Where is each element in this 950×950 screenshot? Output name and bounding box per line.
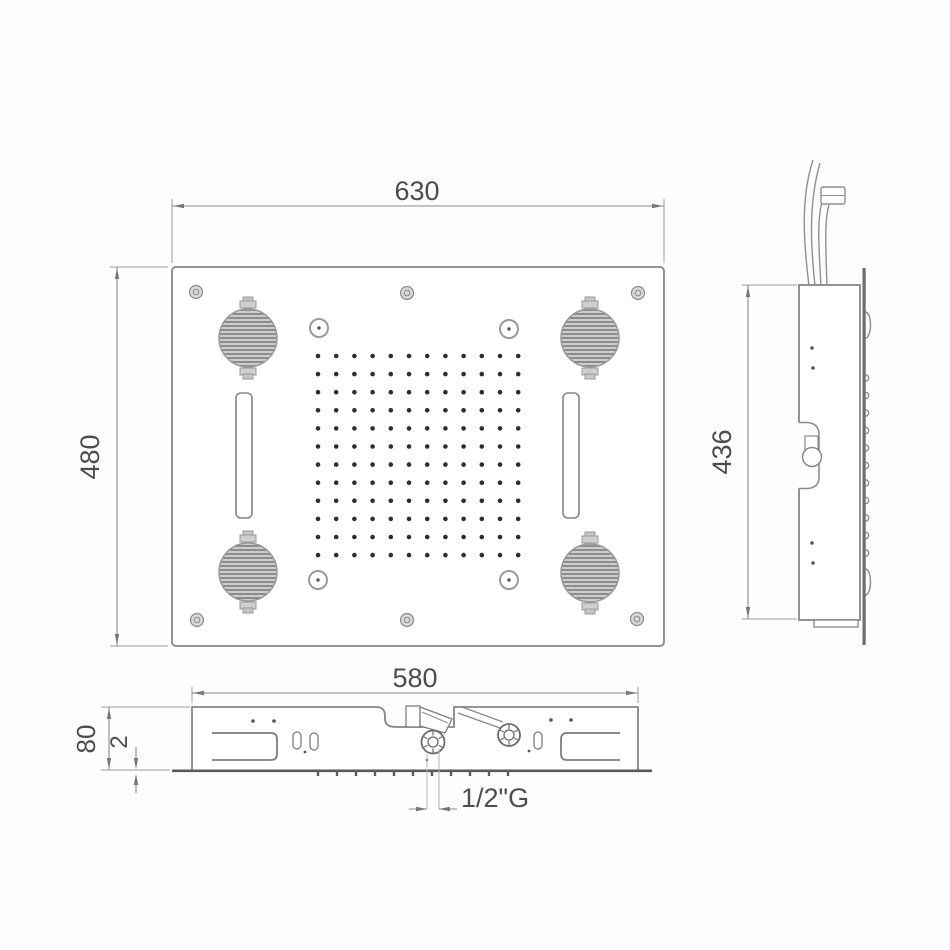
side-view	[797, 160, 871, 645]
nozzle-dot	[498, 390, 503, 395]
nozzle-dot	[334, 480, 339, 485]
nozzle-bump	[866, 392, 869, 398]
nozzle-dot	[516, 354, 521, 359]
nozzle-dot	[352, 372, 357, 377]
dimension-arrow	[107, 708, 111, 719]
nozzle-bump	[866, 375, 869, 381]
nozzle-dot	[480, 354, 485, 359]
nozzle-dot	[425, 372, 430, 377]
nozzle-dot	[334, 517, 339, 522]
nozzle-dot	[334, 372, 339, 377]
nozzle-dot	[407, 535, 412, 540]
nozzle-dot	[389, 517, 394, 522]
nozzle-dot	[370, 480, 375, 485]
nozzle-dot	[498, 372, 503, 377]
led-light	[310, 319, 328, 337]
nozzle-dot	[498, 408, 503, 413]
mounting-screw	[632, 287, 645, 300]
nozzle-tick	[336, 771, 338, 776]
nozzle-dot	[516, 408, 521, 413]
nozzle-dot	[389, 499, 394, 504]
technical-drawing-page: 630 480	[0, 0, 950, 950]
nozzle-dot	[461, 517, 466, 522]
nozzle-dot	[352, 444, 357, 449]
nozzle-dot	[352, 535, 357, 540]
nozzle-dot	[370, 354, 375, 359]
nozzle-dot	[316, 372, 321, 377]
nozzle-tick	[317, 771, 319, 776]
nozzle-dot	[425, 499, 430, 504]
nozzle-dot	[461, 499, 466, 504]
body-width-label: 580	[392, 663, 437, 693]
nozzle-dot	[407, 499, 412, 504]
nozzle-dot	[389, 480, 394, 485]
nozzle-dot	[352, 408, 357, 413]
dimension-arrow	[134, 774, 138, 785]
nozzle-dot	[461, 408, 466, 413]
side-nozzle-bumps	[866, 375, 869, 556]
nozzle-bump	[866, 480, 869, 486]
nozzle-dot	[425, 517, 430, 522]
mounting-screw	[190, 286, 203, 299]
nozzle-dot	[370, 372, 375, 377]
nozzle-dot	[389, 354, 394, 359]
inlet-elbow	[803, 448, 822, 467]
speaker-bump-bottom	[866, 569, 871, 595]
nozzle-dot	[461, 535, 466, 540]
nozzle-dot	[480, 553, 485, 558]
nozzle-dot	[407, 390, 412, 395]
nozzle-dot	[498, 535, 503, 540]
nozzle-dot	[425, 444, 430, 449]
front-width-label: 630	[394, 176, 439, 206]
flange-thickness-label: 2	[106, 735, 133, 748]
mounting-screw	[191, 614, 204, 627]
nozzle-dot	[516, 426, 521, 431]
waterfall-slot-right	[563, 393, 579, 518]
nozzle-dot	[352, 354, 357, 359]
nozzle-dot	[425, 462, 430, 467]
nozzle-bump	[866, 427, 869, 433]
nozzle-dot	[480, 444, 485, 449]
nozzle-dot	[480, 517, 485, 522]
nozzle-dot	[461, 444, 466, 449]
keyhole-slot	[534, 732, 542, 749]
cables	[804, 160, 845, 286]
nozzle-dot	[334, 553, 339, 558]
nozzle-dot	[407, 480, 412, 485]
nozzle-dot	[316, 408, 321, 413]
nozzle-dot	[516, 535, 521, 540]
nozzle-dot	[352, 426, 357, 431]
dimension-arrow	[416, 807, 427, 811]
waterfall-slot-left	[236, 393, 252, 518]
nozzle-bump	[866, 515, 869, 521]
dimension-arrow	[193, 691, 204, 695]
nozzle-dot	[498, 480, 503, 485]
nozzle-dot	[461, 553, 466, 558]
led-light	[309, 571, 327, 589]
nozzle-dot	[516, 372, 521, 377]
nozzle-dot	[389, 408, 394, 413]
nozzle-dot	[443, 390, 448, 395]
front-height-label: 480	[75, 434, 105, 479]
nozzle-dot	[352, 499, 357, 504]
nozzle-dot	[425, 354, 430, 359]
nozzle-dot	[407, 553, 412, 558]
thread-fitting-right	[498, 724, 520, 746]
nozzle-dot	[407, 517, 412, 522]
nozzle-bump	[866, 445, 869, 451]
nozzle-dot	[516, 444, 521, 449]
nozzle-dot	[389, 462, 394, 467]
nozzle-dot	[480, 408, 485, 413]
side-height-label: 436	[707, 429, 737, 474]
nozzle-dot	[370, 462, 375, 467]
dimension-front-width: 630	[172, 176, 664, 263]
nozzle-dot	[443, 408, 448, 413]
nozzle-dot	[498, 354, 503, 359]
mounting-screw	[631, 613, 644, 626]
nozzle-dot	[461, 354, 466, 359]
nozzle-dot	[425, 535, 430, 540]
nozzle-dot	[389, 390, 394, 395]
dimension-flange-thickness: 2	[106, 735, 136, 793]
nozzle-dot	[480, 480, 485, 485]
nozzle-dot	[316, 535, 321, 540]
nozzle-dot	[498, 426, 503, 431]
nozzle-dot	[461, 462, 466, 467]
nozzle-dot	[443, 499, 448, 504]
nozzle-tick	[412, 771, 414, 776]
nozzle-tick	[488, 771, 490, 776]
nozzle-bump	[866, 410, 869, 416]
nozzle-tick	[507, 771, 509, 776]
nozzle-dot	[480, 390, 485, 395]
nozzle-dot	[316, 444, 321, 449]
nozzle-dot	[480, 499, 485, 504]
nozzle-dot	[425, 553, 430, 558]
nozzle-dot	[480, 535, 485, 540]
body-depth-label: 80	[71, 725, 101, 754]
nozzle-dot	[389, 535, 394, 540]
dimension-arrow	[115, 634, 119, 645]
nozzle-dot	[443, 354, 448, 359]
dimension-arrow	[652, 204, 663, 208]
thread-fitting-left	[422, 731, 445, 754]
nozzle-dot	[443, 480, 448, 485]
front-view	[172, 267, 664, 646]
nozzle-dot	[352, 480, 357, 485]
nozzle-dot	[316, 480, 321, 485]
nozzle-dot	[443, 462, 448, 467]
bottom-view	[172, 706, 652, 776]
nozzle-dot	[334, 390, 339, 395]
dimension-arrow	[439, 807, 450, 811]
nozzle-tick	[393, 771, 395, 776]
nozzle-dot	[334, 535, 339, 540]
nozzle-dot	[352, 462, 357, 467]
nozzle-dot	[334, 499, 339, 504]
nozzle-dot	[407, 462, 412, 467]
mounting-screw	[401, 287, 414, 300]
nozzle-dot	[425, 426, 430, 431]
nozzle-dot	[352, 517, 357, 522]
nozzle-dot	[370, 535, 375, 540]
dimension-arrow	[134, 758, 138, 769]
nozzle-dot	[334, 426, 339, 431]
nozzle-dot	[370, 444, 375, 449]
nozzle-dot	[334, 462, 339, 467]
led-light	[500, 571, 518, 589]
nozzle-dot	[461, 372, 466, 377]
nozzle-dot	[516, 480, 521, 485]
nozzle-tick	[355, 771, 357, 776]
nozzle-dot	[425, 390, 430, 395]
nozzle-dot	[352, 553, 357, 558]
nozzle-tick	[431, 771, 433, 776]
nozzle-dot	[480, 426, 485, 431]
nozzle-dot	[516, 390, 521, 395]
nozzle-dot	[370, 517, 375, 522]
nozzle-dot	[498, 462, 503, 467]
nozzle-bump	[866, 550, 869, 556]
led-light	[500, 320, 518, 338]
nozzle-dot	[389, 426, 394, 431]
nozzle-dot	[352, 390, 357, 395]
nozzle-dot	[516, 499, 521, 504]
nozzle-dot	[334, 354, 339, 359]
nozzle-dot	[370, 426, 375, 431]
dimension-arrow	[115, 268, 119, 279]
nozzle-dot	[516, 553, 521, 558]
nozzle-dot	[425, 480, 430, 485]
keyhole-slot	[293, 732, 301, 749]
nozzle-tick	[374, 771, 376, 776]
thread-size-label: 1/2"G	[461, 783, 529, 813]
nozzle-bump	[866, 532, 869, 538]
nozzle-dot	[498, 444, 503, 449]
nozzle-dot	[370, 499, 375, 504]
dimension-arrow	[746, 286, 750, 297]
nozzle-dot	[443, 535, 448, 540]
shower-head-technical-drawing: 630 480	[0, 0, 950, 950]
nozzle-dot	[316, 499, 321, 504]
nozzle-dot	[407, 408, 412, 413]
nozzle-tick	[469, 771, 471, 776]
nozzle-dot	[334, 408, 339, 413]
nozzle-dot	[443, 426, 448, 431]
dimension-arrow	[107, 758, 111, 769]
dimension-arrow	[626, 691, 637, 695]
nozzle-dot	[407, 354, 412, 359]
dimension-arrow	[746, 607, 750, 618]
nozzle-dot	[516, 517, 521, 522]
nozzle-dot	[480, 462, 485, 467]
nozzle-dot	[316, 426, 321, 431]
nozzle-dot	[316, 553, 321, 558]
nozzle-dot	[316, 462, 321, 467]
nozzle-tick	[450, 771, 452, 776]
dimension-arrow	[173, 204, 184, 208]
keyhole-slot	[310, 733, 318, 750]
nozzle-dot	[443, 553, 448, 558]
nozzle-dot	[334, 444, 339, 449]
nozzle-dot	[516, 462, 521, 467]
nozzle-dot	[461, 390, 466, 395]
nozzle-dot	[425, 408, 430, 413]
nozzle-dot	[407, 426, 412, 431]
nozzle-dot	[443, 372, 448, 377]
nozzle-dot	[389, 444, 394, 449]
nozzle-dot	[461, 426, 466, 431]
nozzle-dot	[370, 553, 375, 558]
nozzle-dot	[498, 499, 503, 504]
nozzle-dot	[316, 517, 321, 522]
nozzle-dot	[316, 354, 321, 359]
nozzle-dot	[498, 553, 503, 558]
dimension-front-height: 480	[75, 267, 168, 646]
nozzle-dot	[407, 372, 412, 377]
nozzle-dot	[498, 517, 503, 522]
nozzle-dot	[443, 517, 448, 522]
nozzle-dot	[480, 372, 485, 377]
nozzle-dot	[370, 390, 375, 395]
mounting-screw	[401, 614, 414, 627]
dimension-body-width: 580	[192, 663, 638, 703]
speaker-bump-top	[866, 312, 871, 338]
nozzle-bump	[866, 497, 869, 503]
nozzle-dot	[389, 372, 394, 377]
nozzle-dot	[370, 408, 375, 413]
nozzle-bump	[866, 462, 869, 468]
bottom-lip	[814, 620, 858, 627]
nozzle-dot	[389, 553, 394, 558]
nozzle-dot	[407, 444, 412, 449]
ceiling-flange-line	[863, 268, 866, 645]
nozzle-dot	[316, 390, 321, 395]
nozzle-dot	[443, 444, 448, 449]
nozzle-dot	[461, 480, 466, 485]
dimension-side-height: 436	[707, 285, 797, 619]
